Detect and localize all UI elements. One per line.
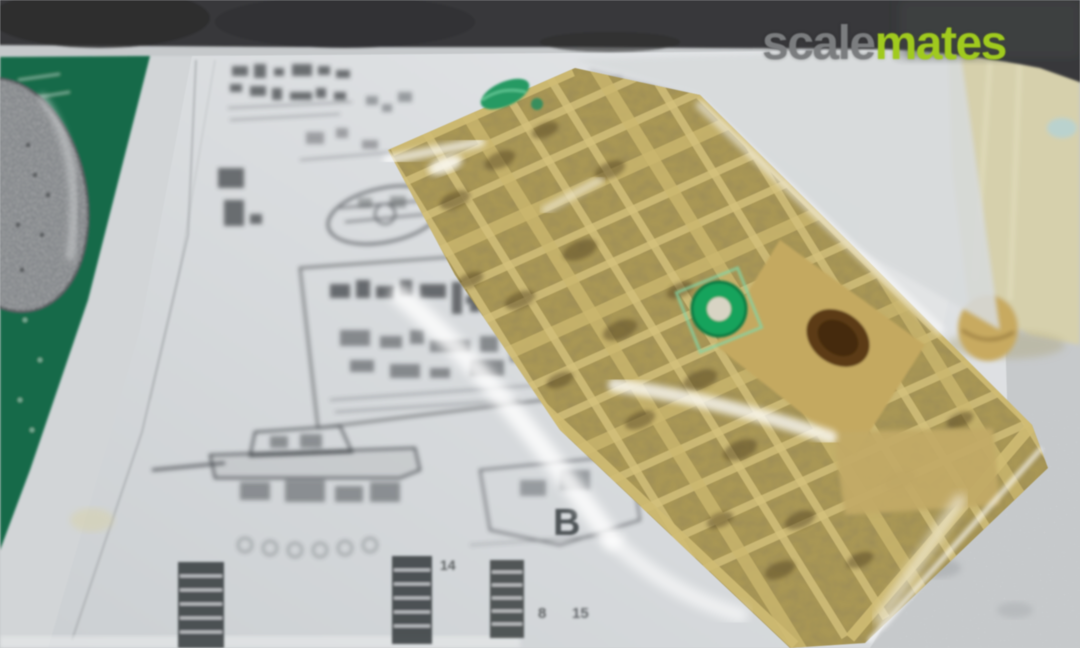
part-number: 15 [572, 605, 589, 622]
part-number: 14 [440, 557, 456, 573]
watermark-scale: scale [762, 17, 875, 70]
watermark: scalemates [762, 20, 1006, 68]
track-block [490, 560, 524, 638]
hull-part-lower [833, 428, 1000, 515]
scene: B 14 8 15 [0, 0, 1080, 648]
track-block [392, 556, 432, 644]
track-block [178, 562, 224, 648]
blue-highlight [1047, 118, 1077, 138]
watermark-mates: mates [875, 17, 1006, 70]
photo-canvas: B 14 8 15 [0, 0, 1080, 648]
paper-stain [70, 508, 114, 532]
part-number: 8 [538, 605, 546, 622]
